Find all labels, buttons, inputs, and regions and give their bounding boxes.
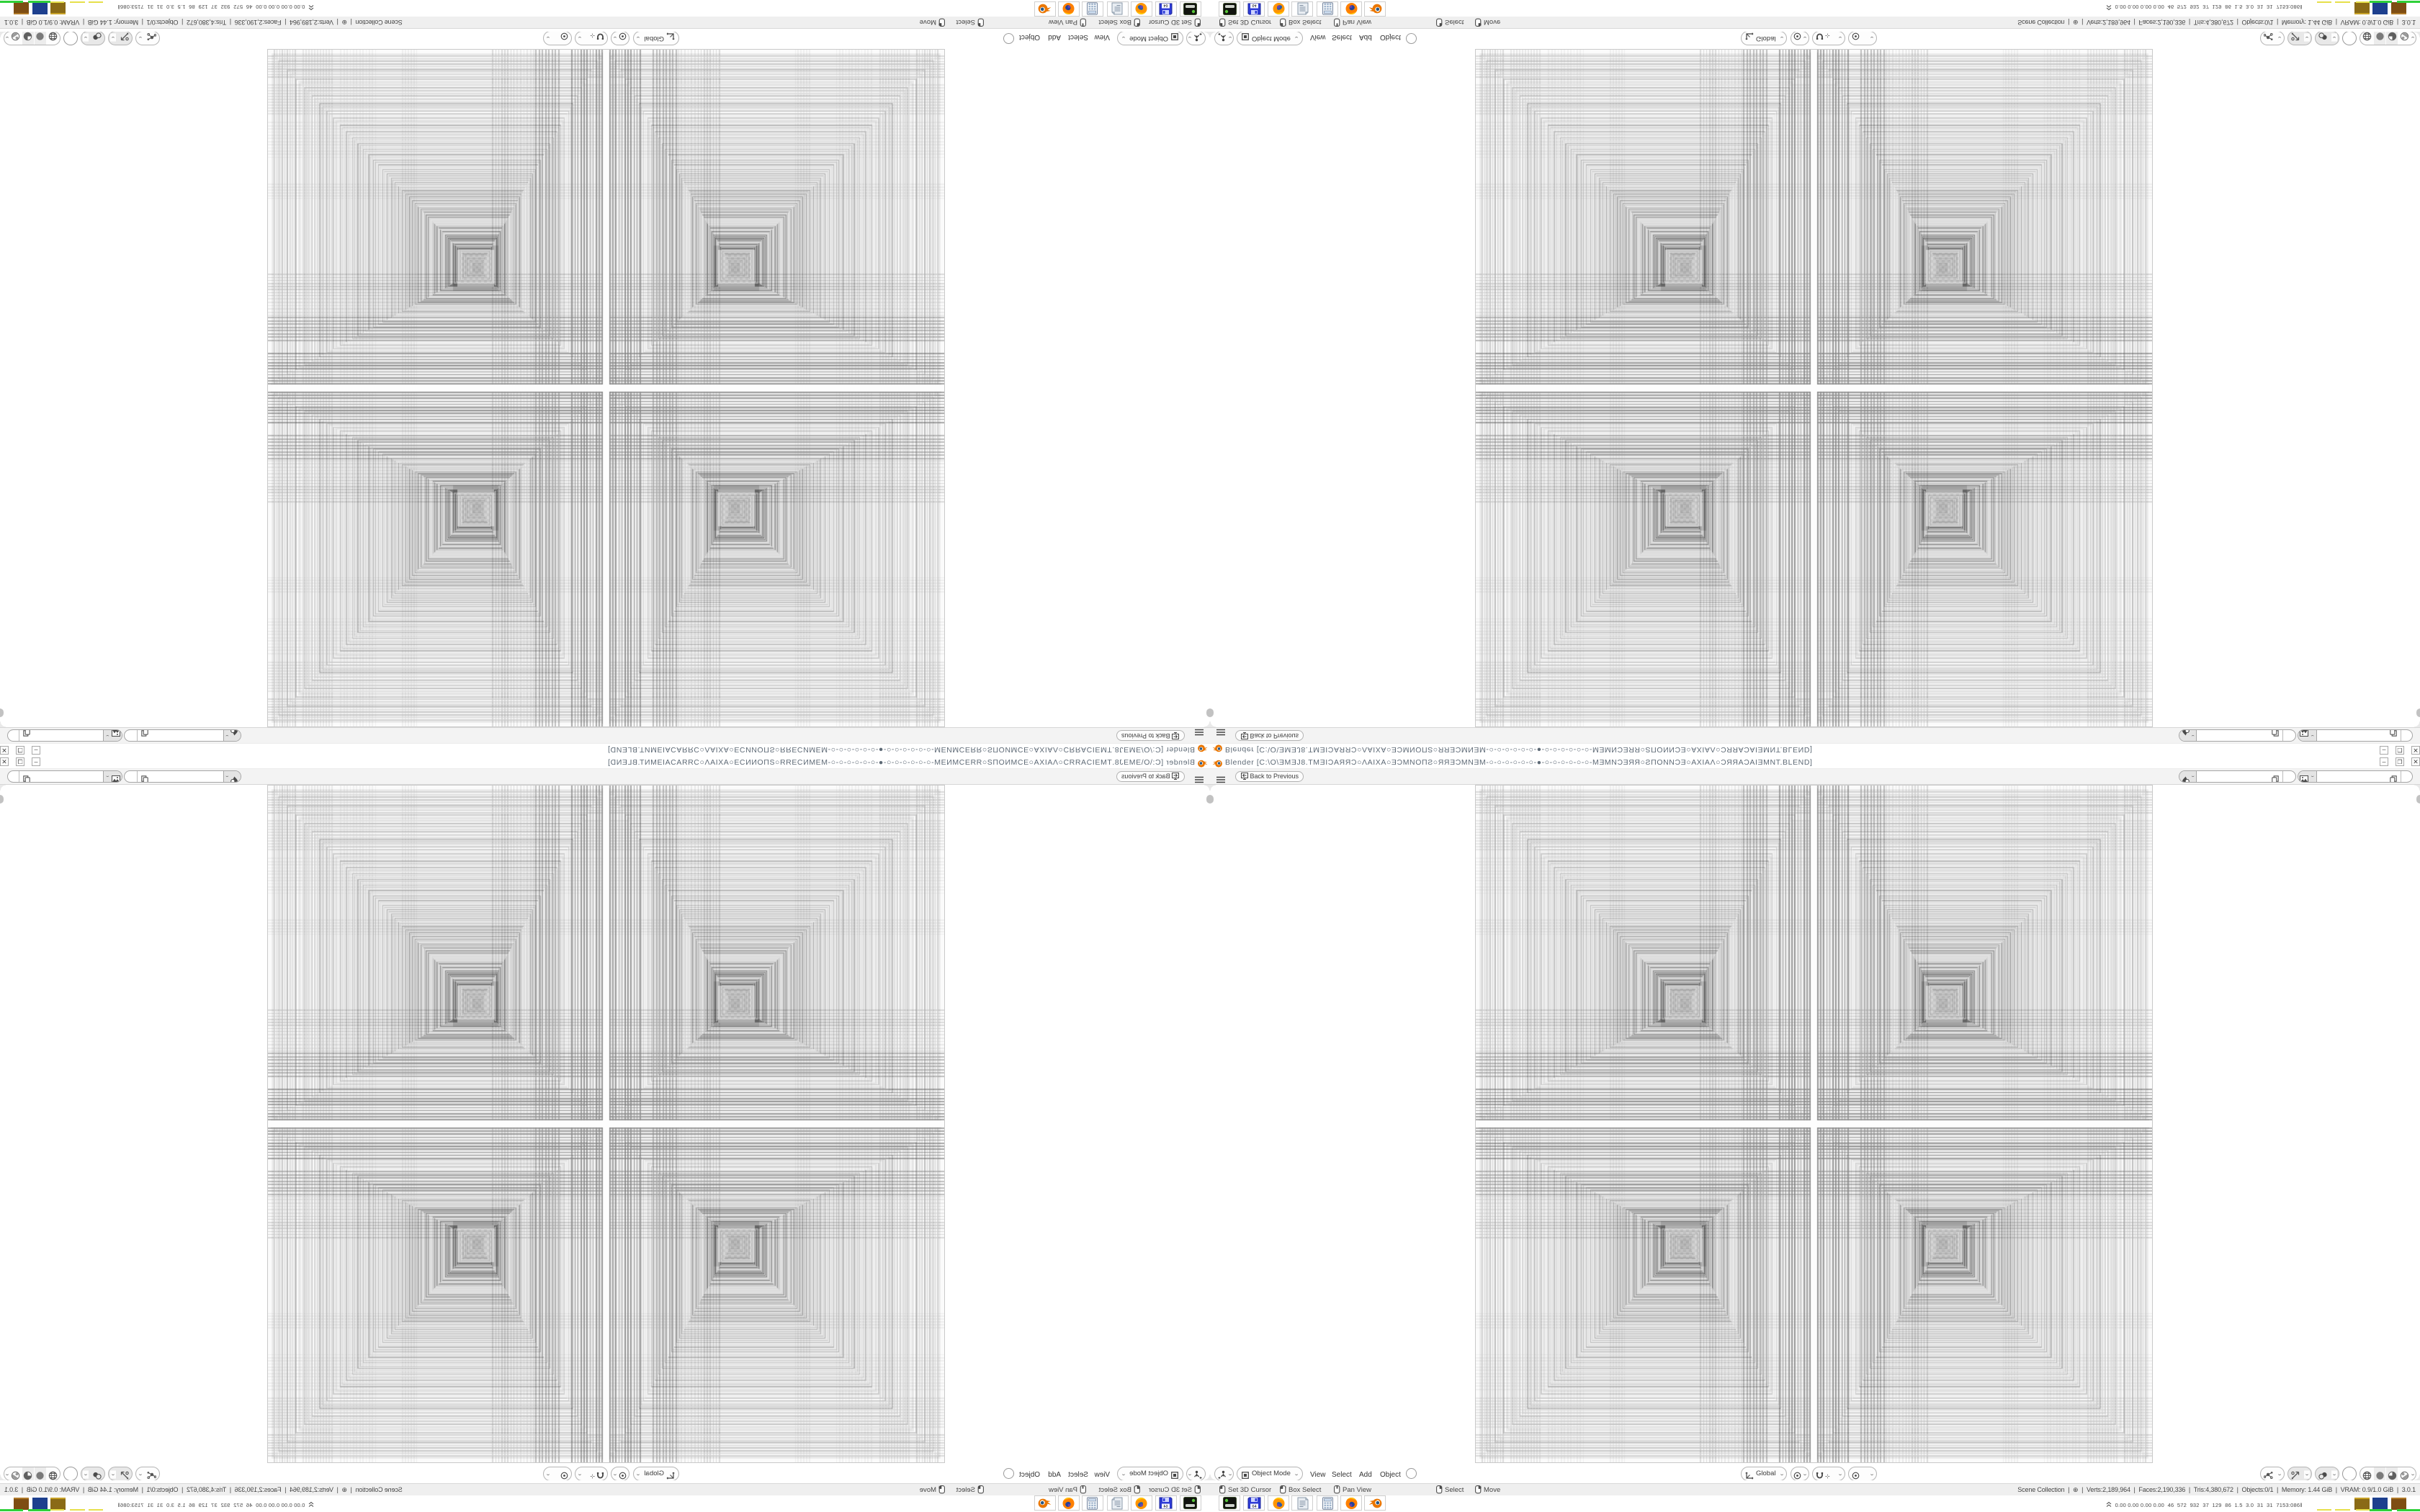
- svg-text:64: 64: [1252, 3, 1256, 7]
- svg-text:64: 64: [1163, 1505, 1168, 1509]
- svg-text:64: 64: [1163, 3, 1168, 7]
- svg-text:64: 64: [1252, 1505, 1256, 1509]
